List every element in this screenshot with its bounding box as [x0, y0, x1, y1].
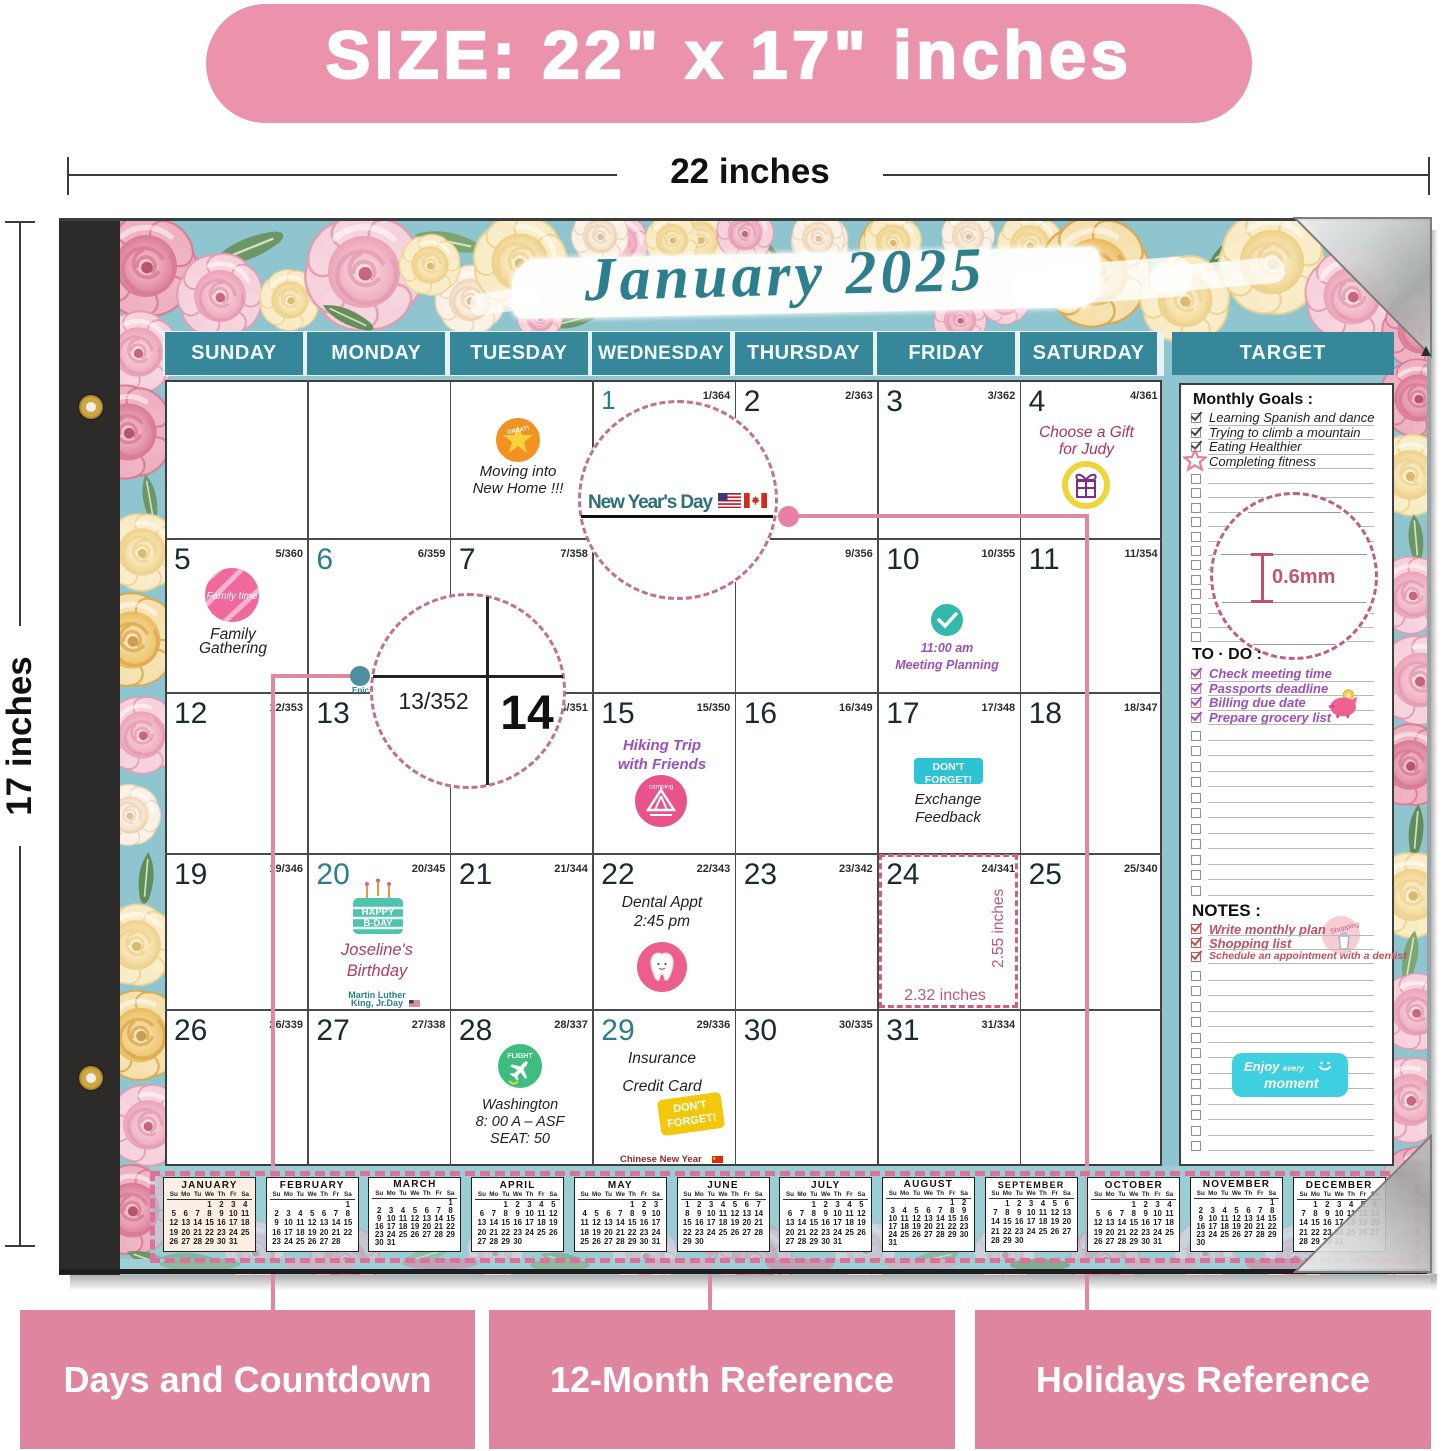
- svg-text:Family time: Family time: [206, 591, 258, 602]
- svg-text:HAPPY: HAPPY: [362, 907, 395, 918]
- svg-text:FLIGHT: FLIGHT: [507, 1053, 533, 1060]
- svg-text:B-DAY: B-DAY: [363, 918, 393, 929]
- svg-text:camping: camping: [649, 784, 674, 791]
